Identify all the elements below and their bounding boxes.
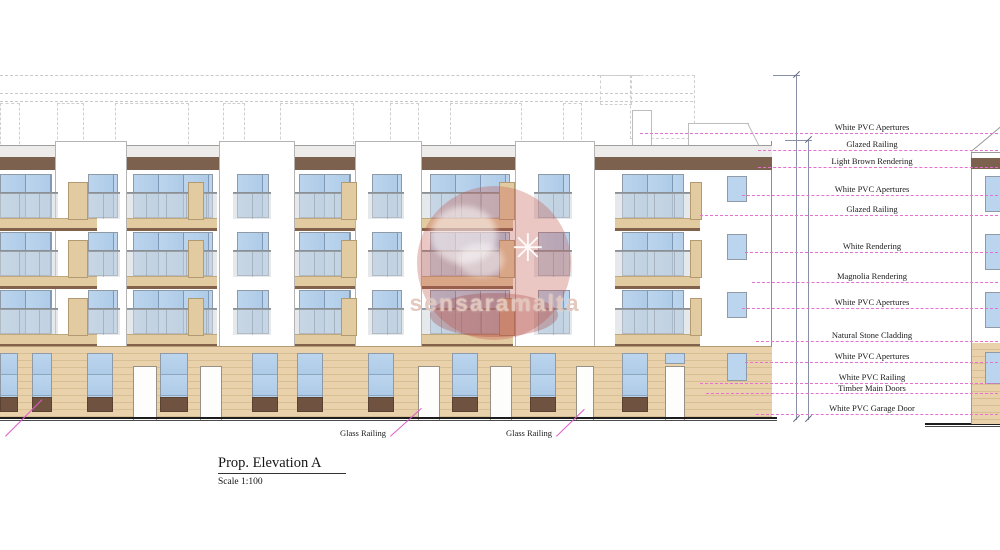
leader-line [742,195,998,196]
dashed-outline [450,103,522,149]
annotation-label: Magnolia Rendering [806,272,938,281]
glazed-railing [0,308,58,335]
floor-level [0,290,772,348]
ground-window [87,353,113,399]
balcony-side-pier [188,240,204,278]
balcony-side-pier [68,182,88,220]
dashed-outline [600,75,632,105]
glazed-railing [615,192,700,219]
ground-window [452,353,478,399]
balcony-side-pier [690,298,702,336]
annotation-label: White PVC Apertures [806,298,938,307]
dashed-guide-line [0,75,640,76]
leader-line [700,215,998,216]
balcony-side-pier [188,298,204,336]
brown-rendering-band [0,157,55,170]
small-window [727,234,747,260]
windmill-star-icon: ✳ [512,226,544,270]
dashed-guide-line [0,101,693,102]
balcony-side-pier [690,240,702,278]
railing-panel [530,397,556,412]
brown-rendering-band [420,157,515,170]
small-window [727,176,747,202]
annotation-label: White PVC Railing [806,373,938,382]
railing-panel [622,397,648,412]
ground-line [925,426,1000,427]
ground-line [0,417,777,419]
railing-panel [452,397,478,412]
leader-line [745,362,998,363]
glazed-railing [233,250,271,277]
balcony-side-pier [68,298,88,336]
main-door [665,366,685,421]
glazed-railing [84,192,120,219]
watermark-globe-icon [458,243,504,277]
dashed-outline [0,103,20,149]
leader-line [706,393,998,394]
brown-rendering-band [293,157,355,170]
annotation-label: White PVC Apertures [806,185,938,194]
ground-window [530,353,556,399]
glazed-railing [615,308,700,335]
glazed-railing [368,308,404,335]
balcony-slab [615,276,700,289]
brown-rendering-band [593,157,772,170]
ground-window [160,353,188,399]
annotation-label: Glazed Railing [806,140,938,149]
leader-line [756,341,998,342]
ground-window [985,352,1000,384]
railing-panel [252,397,278,412]
floor-level [0,174,772,232]
small-window [727,292,747,318]
ground-window [32,353,52,399]
door-transom-window [665,353,685,364]
annotation-label: Light Brown Rendering [806,157,938,166]
annotation-label: Natural Stone Cladding [806,331,938,340]
leader-line [758,167,998,168]
annotation-label: White PVC Apertures [806,123,938,132]
callout-label: Glass Railing [486,428,552,438]
balcony-side-pier [341,182,357,220]
main-door [200,366,222,421]
dimension-line [796,75,797,420]
glazed-railing [84,250,120,277]
glazed-railing [0,192,58,219]
elevation-drawing: White PVC Apertures Glazed Railing Light… [0,0,1000,550]
window [985,176,1000,212]
ground-window [252,353,278,399]
window [985,292,1000,328]
leader-line [752,282,998,283]
balcony-side-pier [68,240,88,278]
annotation-label: Glazed Railing [806,205,938,214]
callout-label: Glass Railing [320,428,386,438]
main-door [133,366,157,421]
railing-panel [297,397,323,412]
penthouse-outline [632,110,652,149]
leader-line [745,252,998,253]
main-door [418,366,440,421]
drawing-scale: Scale 1:100 [218,477,263,487]
brown-rendering-band [125,157,219,170]
leader-line [742,308,998,309]
annotation-label: White PVC Apertures [806,352,938,361]
ground-window [622,353,648,399]
balcony-slab [615,218,700,231]
dashed-guide-line [0,93,693,94]
stone-cladding [0,346,772,419]
dimension-arrow [793,415,800,422]
floor-level [0,232,772,290]
glazed-railing [84,308,120,335]
annotation-label: White Rendering [806,242,938,251]
balcony-side-pier [341,298,357,336]
leader-line [758,150,998,151]
ground-window [297,353,323,399]
drawing-title: Prop. Elevation A [218,455,322,472]
roof-chamfer-line [971,126,1000,152]
watermark-text: sensaramalta [402,290,588,317]
railing-panel [368,397,394,412]
ground-window [368,353,394,399]
glazed-railing [368,250,404,277]
railing-panel [0,397,18,412]
small-window [727,353,747,381]
glazed-railing [615,250,700,277]
railing-panel [87,397,113,412]
title-underline [218,473,346,474]
railing-panel [160,397,188,412]
dimension-arrow [805,415,812,422]
balcony-side-pier [341,240,357,278]
glazed-railing [368,192,404,219]
leader-line [640,133,998,134]
annotation-label: Timber Main Doors [806,384,938,393]
balcony-side-pier [188,182,204,220]
glazed-railing [0,250,58,277]
ground-line [0,420,777,421]
ground-window [0,353,18,399]
glazed-railing [233,308,271,335]
leader-line [756,414,998,415]
glazed-railing [233,192,271,219]
main-door [490,366,512,421]
penthouse-chamfer-line [747,123,760,148]
annotation-label: White PVC Garage Door [806,404,938,413]
